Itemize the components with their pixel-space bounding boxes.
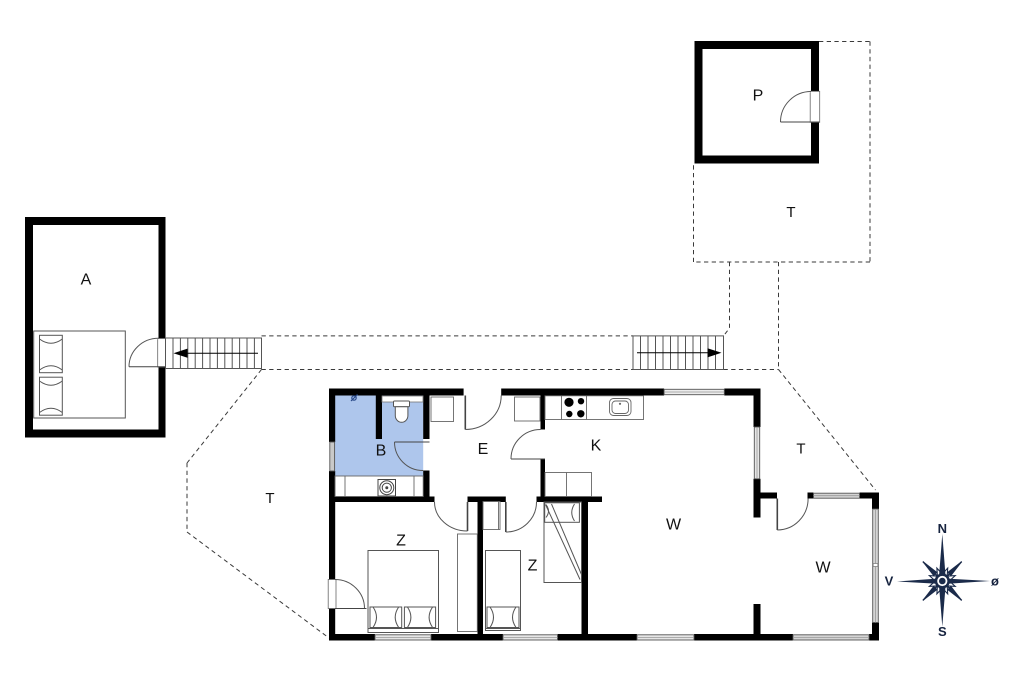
svg-text:T: T (786, 204, 795, 221)
svg-text:K: K (591, 438, 602, 455)
svg-text:P: P (753, 88, 764, 105)
svg-text:Z: Z (396, 533, 406, 550)
svg-text:A: A (81, 272, 92, 289)
svg-text:B: B (376, 443, 387, 460)
svg-text:E: E (478, 441, 489, 458)
svg-text:W: W (815, 560, 831, 577)
svg-text:T: T (265, 490, 274, 507)
svg-text:T: T (796, 441, 805, 458)
svg-text:W: W (666, 517, 682, 534)
svg-text:V: V (885, 574, 894, 589)
svg-text:Z: Z (528, 558, 538, 575)
svg-text:S: S (938, 624, 947, 639)
svg-text:N: N (938, 521, 947, 536)
svg-text:ø: ø (991, 574, 999, 589)
